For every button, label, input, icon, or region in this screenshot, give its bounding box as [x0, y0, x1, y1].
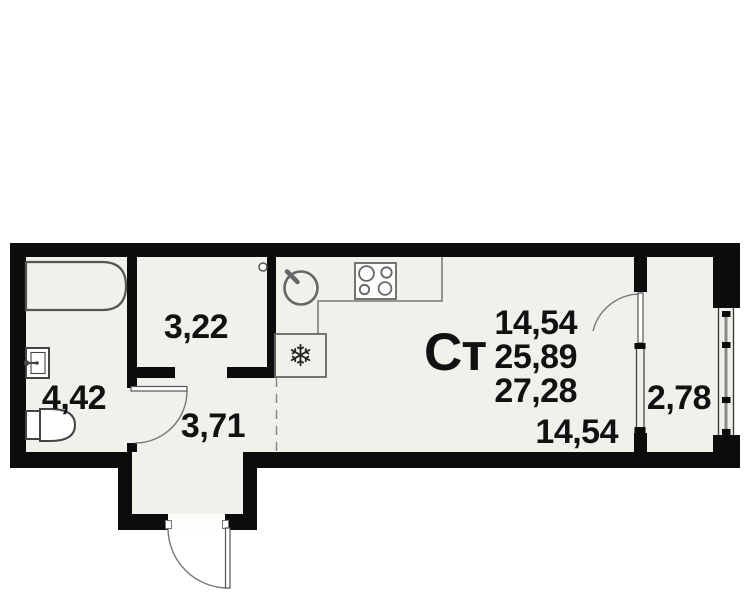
wall-corner-bottom-right [713, 435, 740, 468]
plan-title: Ст [424, 323, 486, 382]
wall-top [10, 243, 740, 257]
outside-right-of-window [734, 308, 749, 435]
snowflake-icon: ❄ [288, 339, 313, 374]
label-balcony-area: 2,78 [647, 379, 711, 417]
wall-closet-south-left [127, 367, 175, 378]
floor-plan: ❄ 4,42 3,22 3,71 2,78 Ст 14,54 25,89 27,… [0, 0, 749, 600]
entrance-opening [168, 514, 225, 530]
wall-vestibule-bottom-left [118, 514, 168, 530]
wall-balcony-divider-top [634, 257, 647, 292]
vent-circle [259, 263, 267, 271]
wall-balcony-divider-bottom [634, 433, 647, 452]
entrance-door-leaf [226, 528, 231, 588]
entrance-door-arc [168, 528, 228, 588]
label-stat-1: 14,54 [494, 304, 577, 342]
bathroom-door-leaf [131, 387, 187, 392]
wall-left [10, 243, 26, 468]
balcony-door-leaf [638, 293, 643, 343]
wall-bathroom-east-lower [127, 443, 137, 452]
wall-closet-south-right [227, 367, 276, 378]
label-stat-3: 27,28 [494, 372, 577, 410]
entrance-door [168, 528, 230, 588]
label-closet-area: 3,22 [164, 308, 228, 346]
stove [355, 263, 396, 299]
label-hall-area: 3,71 [181, 407, 245, 445]
label-stat-2: 25,89 [494, 338, 577, 376]
entrance-jamb-left [166, 521, 172, 529]
wall-bottom-left [10, 452, 132, 468]
entrance-jamb-right [223, 521, 229, 529]
bathroom-sink [24, 348, 49, 378]
wall-bottom-right [243, 452, 740, 468]
toilet-tank [26, 411, 40, 439]
wall-corner-top-right [713, 243, 740, 308]
label-living-room-area: 14,54 [535, 413, 618, 451]
label-bathroom-area: 4,42 [42, 379, 106, 417]
